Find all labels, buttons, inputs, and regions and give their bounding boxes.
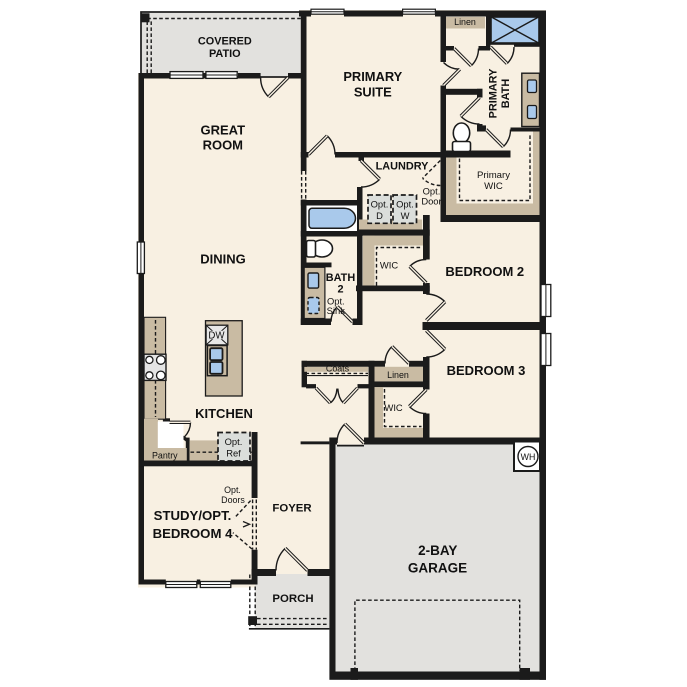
svg-text:Opt.: Opt.	[224, 485, 241, 495]
svg-text:Linen: Linen	[387, 370, 409, 380]
svg-text:Door: Door	[421, 196, 441, 207]
svg-text:D: D	[376, 210, 383, 221]
svg-text:FOYER: FOYER	[272, 503, 311, 515]
svg-text:DW: DW	[208, 331, 225, 342]
svg-text:BATH: BATH	[500, 79, 512, 109]
svg-text:Ref: Ref	[226, 448, 241, 459]
svg-text:Opt.: Opt.	[225, 436, 243, 447]
svg-text:BATH: BATH	[326, 272, 356, 284]
svg-text:PORCH: PORCH	[272, 593, 313, 605]
svg-text:ROOM: ROOM	[203, 138, 243, 153]
svg-text:BEDROOM 4: BEDROOM 4	[153, 526, 234, 541]
svg-text:GREAT: GREAT	[201, 123, 246, 138]
svg-text:Sink: Sink	[327, 305, 346, 316]
svg-text:2: 2	[337, 284, 343, 296]
svg-text:DINING: DINING	[200, 252, 246, 267]
svg-text:SUITE: SUITE	[354, 85, 392, 100]
svg-text:LAUNDRY: LAUNDRY	[376, 161, 430, 173]
svg-text:W: W	[401, 210, 410, 221]
svg-text:Coats: Coats	[326, 364, 350, 374]
svg-text:WIC: WIC	[484, 181, 503, 192]
svg-text:KITCHEN: KITCHEN	[195, 406, 253, 421]
svg-text:WIC: WIC	[384, 402, 402, 413]
svg-text:Opt.: Opt.	[396, 199, 414, 210]
svg-text:Doors: Doors	[221, 495, 245, 505]
svg-text:STUDY/OPT.: STUDY/OPT.	[154, 508, 232, 523]
svg-text:PRIMARY: PRIMARY	[488, 68, 500, 119]
svg-text:GARAGE: GARAGE	[408, 561, 467, 576]
svg-text:COVERED: COVERED	[198, 36, 252, 48]
svg-text:Opt.: Opt.	[371, 199, 389, 210]
svg-text:PRIMARY: PRIMARY	[343, 69, 402, 84]
svg-text:BEDROOM 2: BEDROOM 2	[445, 264, 524, 279]
svg-text:BEDROOM 3: BEDROOM 3	[447, 363, 526, 378]
svg-text:Primary: Primary	[477, 170, 510, 181]
svg-text:WIC: WIC	[380, 259, 398, 270]
svg-text:WH: WH	[521, 452, 536, 462]
svg-text:Pantry: Pantry	[152, 451, 178, 461]
svg-text:PATIO: PATIO	[209, 48, 241, 60]
svg-text:Linen: Linen	[454, 17, 476, 27]
svg-text:2-BAY: 2-BAY	[418, 543, 457, 558]
